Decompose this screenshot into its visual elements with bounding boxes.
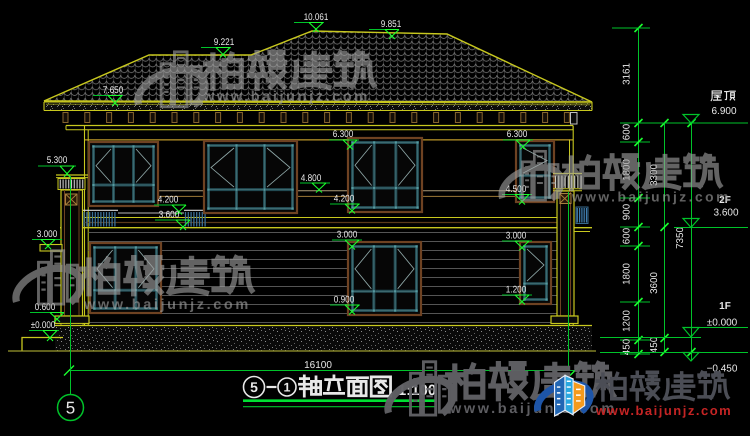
svg-text:16100: 16100 xyxy=(304,360,332,371)
svg-text:www.baijunjz.com: www.baijunjz.com xyxy=(595,403,732,418)
svg-text:3.600: 3.600 xyxy=(159,210,180,221)
svg-text:www.baijunjz.com: www.baijunjz.com xyxy=(571,190,731,205)
svg-text:450: 450 xyxy=(649,336,660,353)
svg-text:3600: 3600 xyxy=(649,272,660,294)
svg-text:6.300: 6.300 xyxy=(507,129,528,140)
svg-text:1800: 1800 xyxy=(622,263,633,285)
svg-text:3.600: 3.600 xyxy=(713,208,738,219)
svg-text:www.baijunjz.com: www.baijunjz.com xyxy=(83,297,251,313)
svg-text:10.061: 10.061 xyxy=(304,12,329,23)
svg-text:600: 600 xyxy=(622,123,633,140)
svg-text:5: 5 xyxy=(66,399,75,418)
svg-text:4.200: 4.200 xyxy=(158,195,179,206)
svg-text:9.851: 9.851 xyxy=(381,19,402,30)
svg-text:7350: 7350 xyxy=(675,227,686,249)
svg-text:1: 1 xyxy=(284,381,291,395)
svg-text:600: 600 xyxy=(622,227,633,244)
svg-text:1200: 1200 xyxy=(622,310,633,332)
svg-text:www.baijunjz.com: www.baijunjz.com xyxy=(202,89,370,105)
svg-text:5: 5 xyxy=(250,379,258,395)
svg-text:7.650: 7.650 xyxy=(103,85,124,96)
svg-text:−0.450: −0.450 xyxy=(707,364,738,375)
svg-text:±0.000: ±0.000 xyxy=(707,318,738,329)
svg-text:9.221: 9.221 xyxy=(214,37,235,48)
svg-text:0.900: 0.900 xyxy=(334,295,355,306)
svg-text:3.000: 3.000 xyxy=(506,231,527,242)
svg-text:4.800: 4.800 xyxy=(301,173,322,184)
svg-text:6.300: 6.300 xyxy=(333,129,354,140)
svg-text:900: 900 xyxy=(622,203,633,220)
svg-text:1F: 1F xyxy=(719,301,731,312)
svg-text:±0.000: ±0.000 xyxy=(31,320,56,331)
svg-text:3.000: 3.000 xyxy=(37,229,58,240)
svg-text:1.200: 1.200 xyxy=(506,285,527,296)
svg-text:3.000: 3.000 xyxy=(337,230,358,241)
svg-text:6.900: 6.900 xyxy=(711,106,736,117)
svg-text:3161: 3161 xyxy=(622,63,633,85)
svg-text:5.300: 5.300 xyxy=(47,155,68,166)
svg-text:4.200: 4.200 xyxy=(334,194,355,205)
